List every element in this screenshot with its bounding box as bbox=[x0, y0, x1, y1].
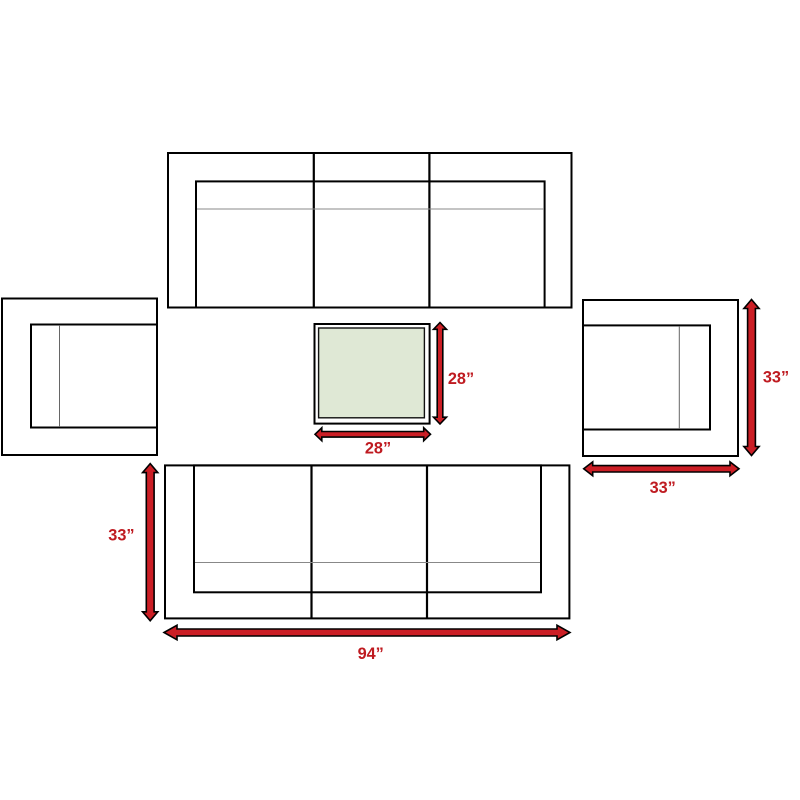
svg-text:33”: 33” bbox=[108, 526, 134, 544]
svg-text:28”: 28” bbox=[448, 370, 474, 388]
svg-text:33”: 33” bbox=[763, 369, 789, 387]
svg-text:33”: 33” bbox=[650, 479, 676, 497]
svg-text:28”: 28” bbox=[365, 440, 391, 458]
svg-text:94”: 94” bbox=[358, 645, 384, 663]
